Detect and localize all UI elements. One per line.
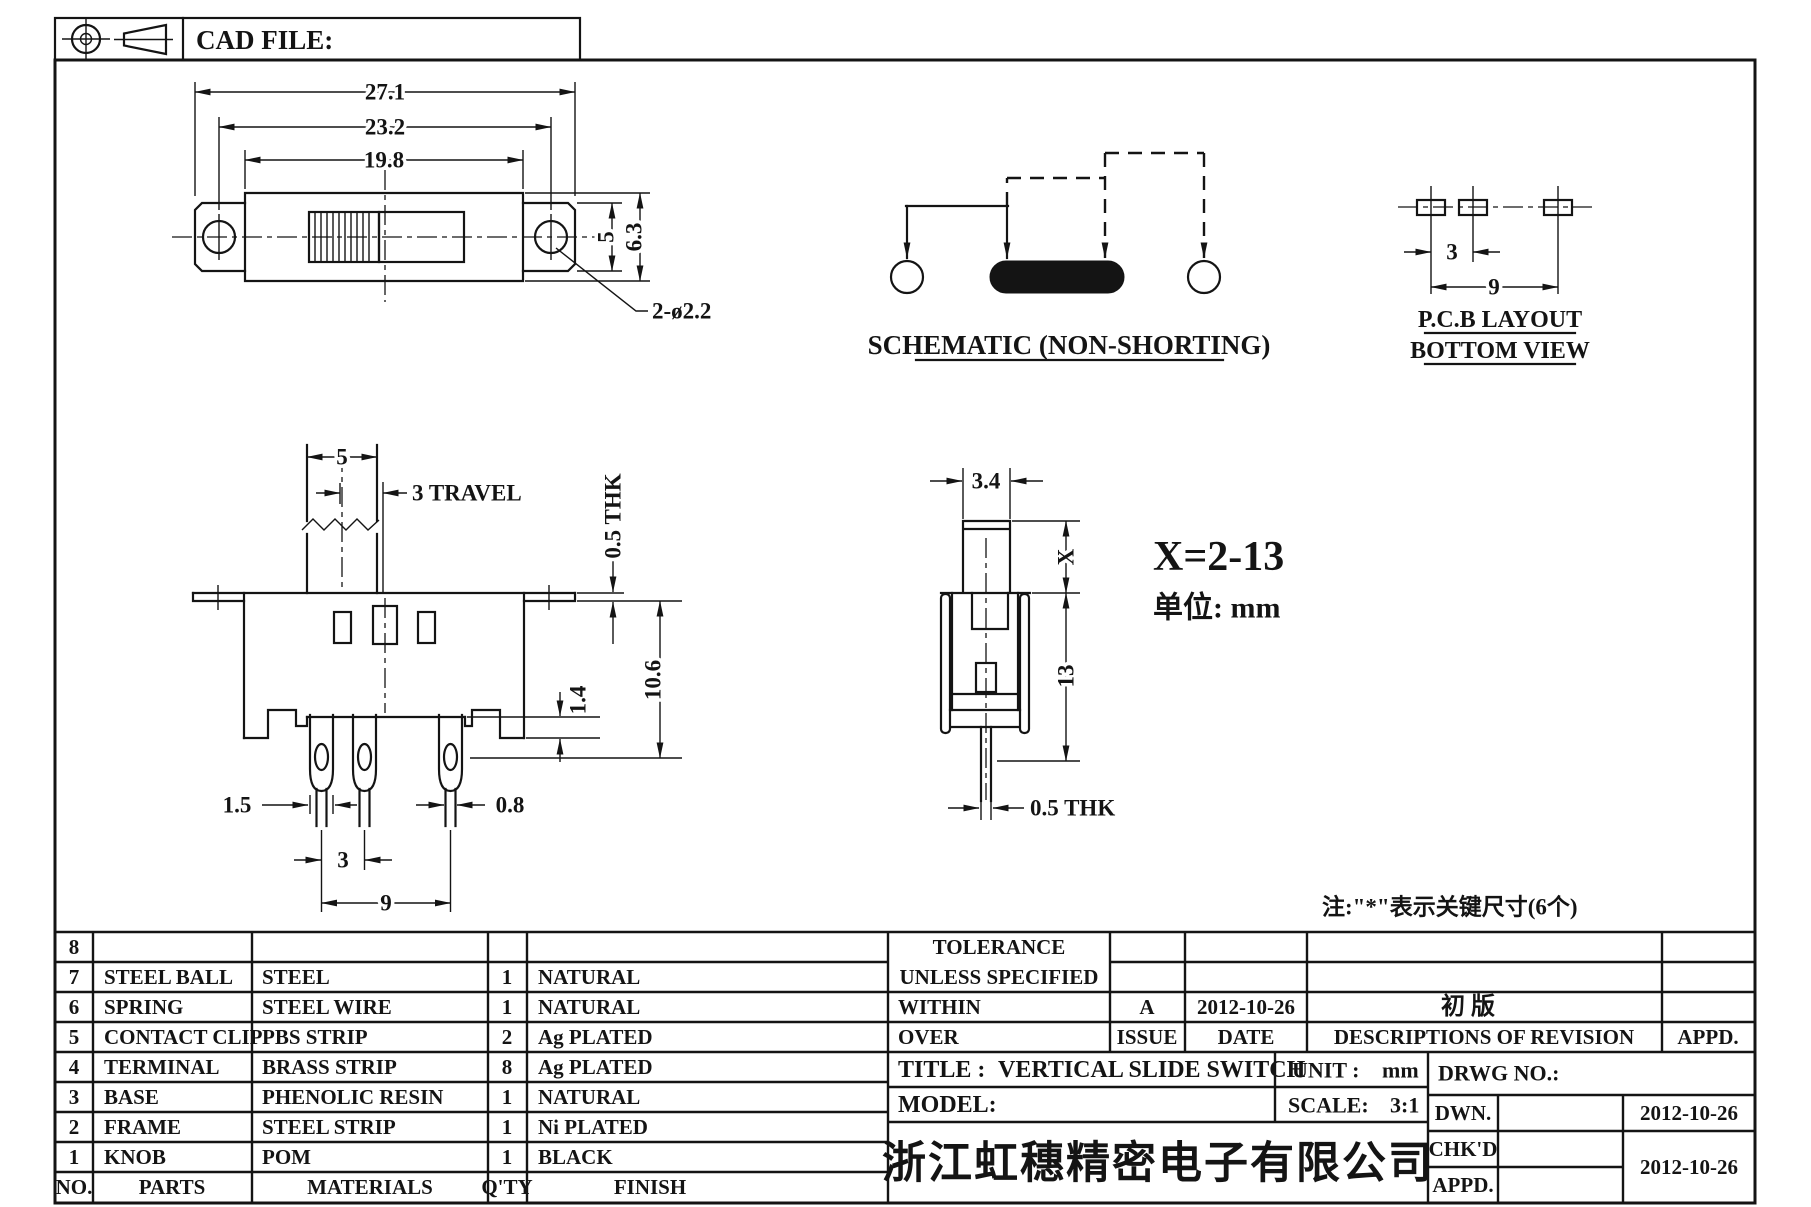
issue-value: A — [1139, 995, 1155, 1019]
part-material: STEEL WIRE — [262, 995, 392, 1019]
key-dimension-note: 注:"*"表示关键尺寸(6个) — [1322, 894, 1578, 920]
schematic-terminal-right — [1188, 261, 1220, 293]
part-no: 8 — [69, 935, 80, 959]
tolerance-line1: TOLERANCE — [933, 935, 1066, 959]
schematic-view: SCHEMATIC (NON-SHORTING) — [868, 153, 1271, 360]
frame-leg-right — [1020, 594, 1029, 733]
dim-front-terminal-width: 1.5 — [223, 793, 252, 818]
cad-file-label: CAD FILE: — [196, 25, 333, 55]
dim-top-cover: 19.8 — [364, 148, 404, 173]
part-name: BASE — [104, 1085, 159, 1109]
revision-description: 初 版 — [1441, 993, 1495, 1020]
terminal-3 — [439, 715, 462, 791]
dim-side-body: 13 — [1054, 665, 1079, 688]
part-material: STEEL STRIP — [262, 1115, 396, 1139]
part-finish: NATURAL — [538, 1085, 640, 1109]
dim-front-flange-thk: 0.5 THK — [601, 473, 626, 558]
pcb-caption-line1: P.C.B LAYOUT — [1418, 307, 1582, 333]
dim-top-outer-height: 6.3 — [622, 223, 647, 252]
part-name: TERMINAL — [104, 1055, 220, 1079]
unit-value: mm — [1382, 1058, 1419, 1083]
part-material: BRASS STRIP — [262, 1055, 397, 1079]
dim-pcb-pitch: 3 — [1446, 240, 1458, 265]
part-qty: 1 — [502, 1115, 513, 1139]
drwg-no-label: DRWG NO.: — [1438, 1061, 1559, 1086]
dim-side-pin-thk: 0.5 THK — [1030, 796, 1115, 821]
part-material: STEEL — [262, 965, 330, 989]
dim-front-skirt: 1.4 — [566, 685, 591, 714]
part-qty: 1 — [502, 1145, 513, 1169]
col-header-qty: Q'TY — [481, 1175, 532, 1199]
unit-note: 单位: mm — [1153, 591, 1280, 625]
over-label: OVER — [898, 1025, 960, 1049]
part-no: 3 — [69, 1085, 80, 1109]
dwn-label: DWN. — [1435, 1101, 1492, 1125]
part-name: CONTACT CLIP — [104, 1025, 263, 1049]
model-label: MODEL: — [898, 1092, 997, 1118]
part-material: PBS STRIP — [262, 1025, 368, 1049]
mounting-flange — [193, 593, 575, 601]
revision-date: 2012-10-26 — [1197, 995, 1295, 1019]
dim-front-span: 9 — [380, 891, 392, 916]
unit-label: UNIT : — [1292, 1058, 1359, 1083]
dim-side-x: X — [1054, 548, 1079, 565]
dim-side-knob: 3.4 — [972, 469, 1001, 494]
col-header-materials: MATERIALS — [307, 1175, 433, 1199]
part-finish: NATURAL — [538, 995, 640, 1019]
part-no: 7 — [69, 965, 80, 989]
terminal-1 — [310, 715, 333, 791]
schematic-caption: SCHEMATIC (NON-SHORTING) — [868, 330, 1271, 360]
company-name: 浙江虹穗精密电子有限公司 — [882, 1139, 1434, 1188]
part-qty: 1 — [502, 1085, 513, 1109]
part-qty: 1 — [502, 965, 513, 989]
dim-front-height: 10.6 — [641, 660, 666, 700]
terminal-2 — [353, 715, 376, 791]
part-finish: BLACK — [538, 1145, 613, 1169]
part-name: SPRING — [104, 995, 183, 1019]
part-no: 4 — [69, 1055, 80, 1079]
pcb-caption-line2: BOTTOM VIEW — [1410, 338, 1590, 364]
col-header-no: NO. — [56, 1175, 93, 1199]
drawing-page: CAD FILE: 27.1 23.2 19.8 5 6.3 2-ø2.2 — [0, 0, 1811, 1207]
part-material: POM — [262, 1145, 311, 1169]
part-name: STEEL BALL — [104, 965, 233, 989]
scale-value: 3:1 — [1390, 1093, 1419, 1118]
schematic-common-contact — [990, 261, 1124, 293]
appd-col-label: APPD. — [1677, 1025, 1738, 1049]
front-view: 5 3 TRAVEL 0.5 THK 10.6 1.4 1.5 0.8 3 9 — [193, 445, 682, 916]
col-header-parts: PARTS — [139, 1175, 206, 1199]
part-no: 1 — [69, 1145, 80, 1169]
part-qty: 8 — [502, 1055, 513, 1079]
part-no: 5 — [69, 1025, 80, 1049]
dim-top-overall: 27.1 — [365, 80, 405, 105]
part-finish: Ag PLATED — [538, 1025, 653, 1049]
engineering-drawing: CAD FILE: 27.1 23.2 19.8 5 6.3 2-ø2.2 — [0, 0, 1811, 1207]
part-material: PHENOLIC RESIN — [262, 1085, 443, 1109]
part-no: 2 — [69, 1115, 80, 1139]
dwn-date: 2012-10-26 — [1640, 1101, 1738, 1125]
scale-label: SCALE: — [1288, 1093, 1369, 1118]
frame-leg-left — [941, 594, 950, 733]
part-name: KNOB — [104, 1145, 166, 1169]
part-qty: 1 — [502, 995, 513, 1019]
x-range-note: X=2-13 — [1153, 534, 1284, 580]
dim-front-knob: 5 — [336, 445, 348, 470]
issue-label: ISSUE — [1117, 1025, 1178, 1049]
schematic-terminal-left — [891, 261, 923, 293]
revision-desc-label: DESCRIPTIONS OF REVISION — [1334, 1025, 1634, 1049]
title-block: TOLERANCE UNLESS SPECIFIED WITHIN OVER A… — [882, 935, 1739, 1197]
col-header-finish: FINISH — [614, 1175, 686, 1199]
top-view: 27.1 23.2 19.8 5 6.3 2-ø2.2 — [172, 80, 711, 324]
projection-symbol — [62, 18, 173, 59]
dim-top-hole-span: 23.2 — [365, 115, 405, 140]
side-view: 3.4 0.5 THK X 13 X=2-13 单位: mm — [930, 468, 1284, 821]
within-label: WITHIN — [898, 995, 981, 1019]
dim-pcb-span: 9 — [1488, 275, 1500, 300]
dim-front-travel: 3 TRAVEL — [412, 481, 522, 506]
dim-hole-callout: 2-ø2.2 — [652, 299, 711, 324]
chkd-label: CHK'D — [1429, 1137, 1498, 1161]
part-finish: NATURAL — [538, 965, 640, 989]
part-finish: Ag PLATED — [538, 1055, 653, 1079]
part-qty: 2 — [502, 1025, 513, 1049]
pcb-view: 3 9 P.C.B LAYOUT BOTTOM VIEW — [1398, 186, 1592, 364]
chkd-appd-date: 2012-10-26 — [1640, 1155, 1738, 1179]
dim-front-tip-width: 0.8 — [496, 793, 525, 818]
date-label: DATE — [1218, 1025, 1275, 1049]
part-name: FRAME — [104, 1115, 181, 1139]
knob-break-line — [302, 519, 379, 530]
part-finish: Ni PLATED — [538, 1115, 648, 1139]
part-no: 6 — [69, 995, 80, 1019]
title-label: TITLE : — [898, 1057, 985, 1083]
appd-row-label: APPD. — [1432, 1173, 1493, 1197]
title-value: VERTICAL SLIDE SWITCH — [998, 1057, 1306, 1083]
tolerance-line2: UNLESS SPECIFIED — [900, 965, 1099, 989]
parts-table: 8 7 STEEL BALL STEEL 1 NATURAL 6 SPRING … — [56, 935, 687, 1199]
dim-top-inner-height: 5 — [594, 231, 619, 243]
dim-front-pitch: 3 — [337, 848, 349, 873]
